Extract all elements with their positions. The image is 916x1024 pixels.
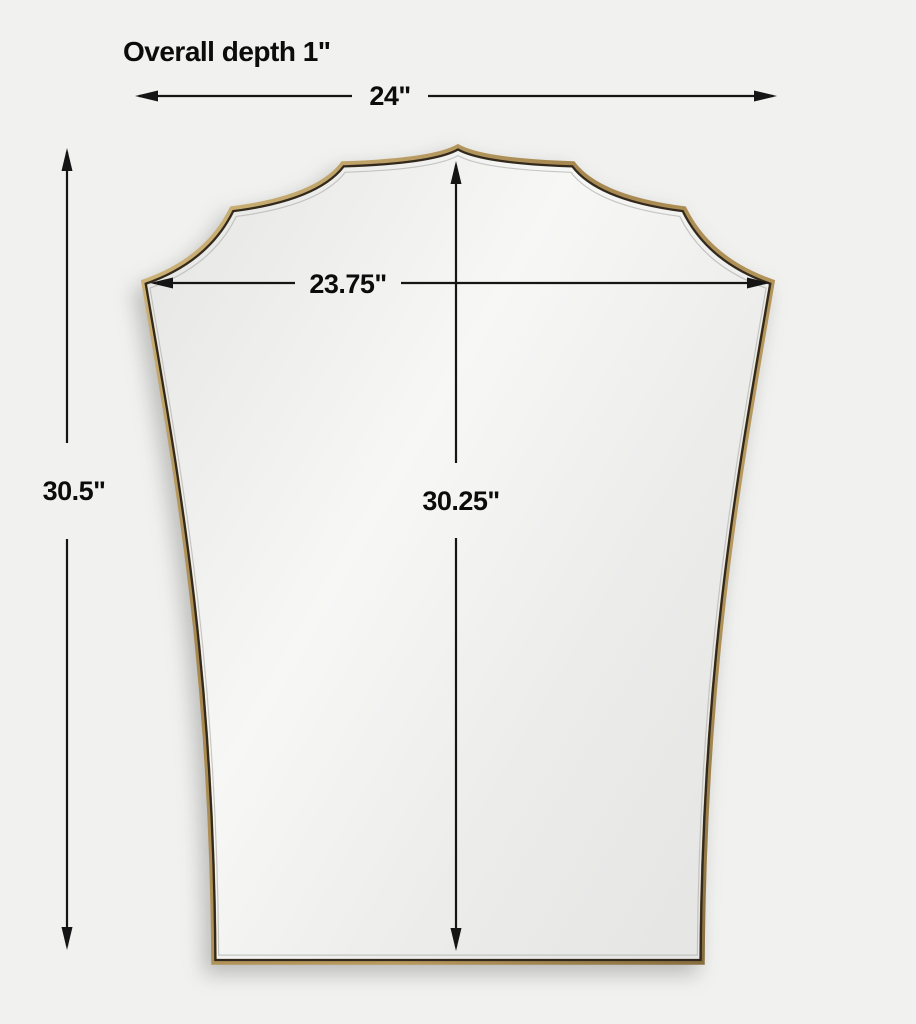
diagram-canvas: 24" 30.5" 23.75" 30.25" Overall dep: [0, 0, 916, 1024]
dimension-diagram: 24" 30.5" 23.75" 30.25" Overall dep: [0, 0, 916, 1024]
arrow-up-icon: [62, 148, 73, 171]
diagram-title: Overall depth 1": [123, 36, 331, 67]
arrow-right-icon: [754, 91, 777, 102]
mirror-height-label: 30.25": [422, 486, 499, 516]
overall-width-label: 24": [369, 81, 410, 111]
mirror-glass: [144, 147, 772, 962]
overall-height-label: 30.5": [43, 476, 106, 506]
arrow-down-icon: [62, 927, 73, 950]
mirror: [144, 147, 772, 962]
overall-width-dimension: 24": [135, 81, 777, 111]
mirror-width-label: 23.75": [309, 269, 386, 299]
overall-height-dimension: 30.5": [43, 148, 106, 950]
arrow-left-icon: [135, 91, 158, 102]
